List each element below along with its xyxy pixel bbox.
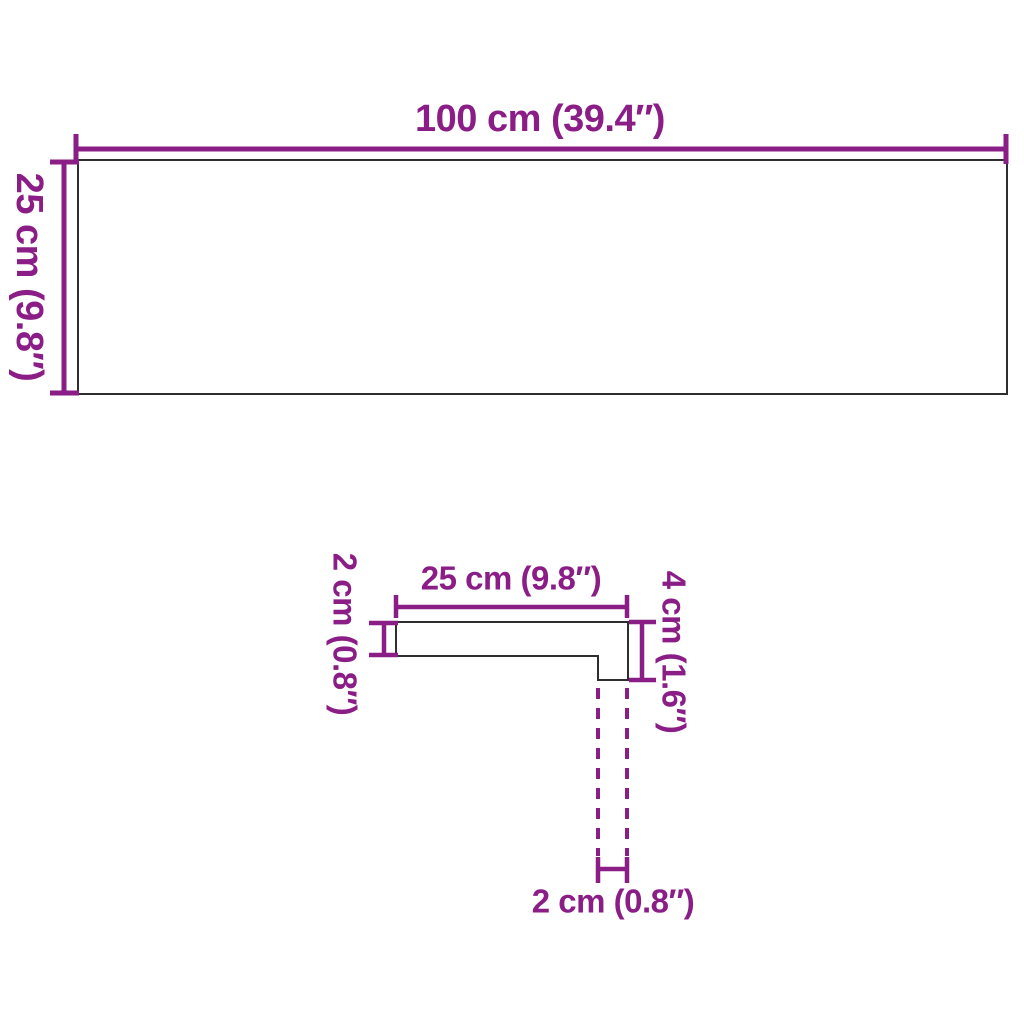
nosing-width-dimension — [598, 857, 627, 883]
tread-width-label: 25 cm (9.8″) — [421, 562, 601, 595]
tread-width-dimension — [396, 595, 627, 618]
profile-outline — [396, 622, 628, 680]
profile-height-dimension — [629, 622, 656, 680]
tread-thickness-dimension — [369, 623, 398, 655]
nosing-width-label: 2 cm (0.8″) — [532, 885, 695, 918]
board-depth-label: 25 cm (9.8″) — [10, 173, 48, 382]
dimension-diagram: 100 cm (39.4″) 25 cm (9.8″) 25 cm (9.8″)… — [0, 0, 1024, 1024]
diagram-drawing — [0, 0, 1024, 1024]
board-width-label: 100 cm (39.4″) — [415, 100, 665, 138]
profile-height-label: 4 cm (1.6″) — [658, 571, 691, 734]
board-depth-dimension — [50, 162, 79, 393]
nosing-extension-lines — [598, 688, 627, 856]
tread-thickness-label: 2 cm (0.8″) — [329, 553, 362, 716]
board-outline — [78, 160, 1007, 394]
